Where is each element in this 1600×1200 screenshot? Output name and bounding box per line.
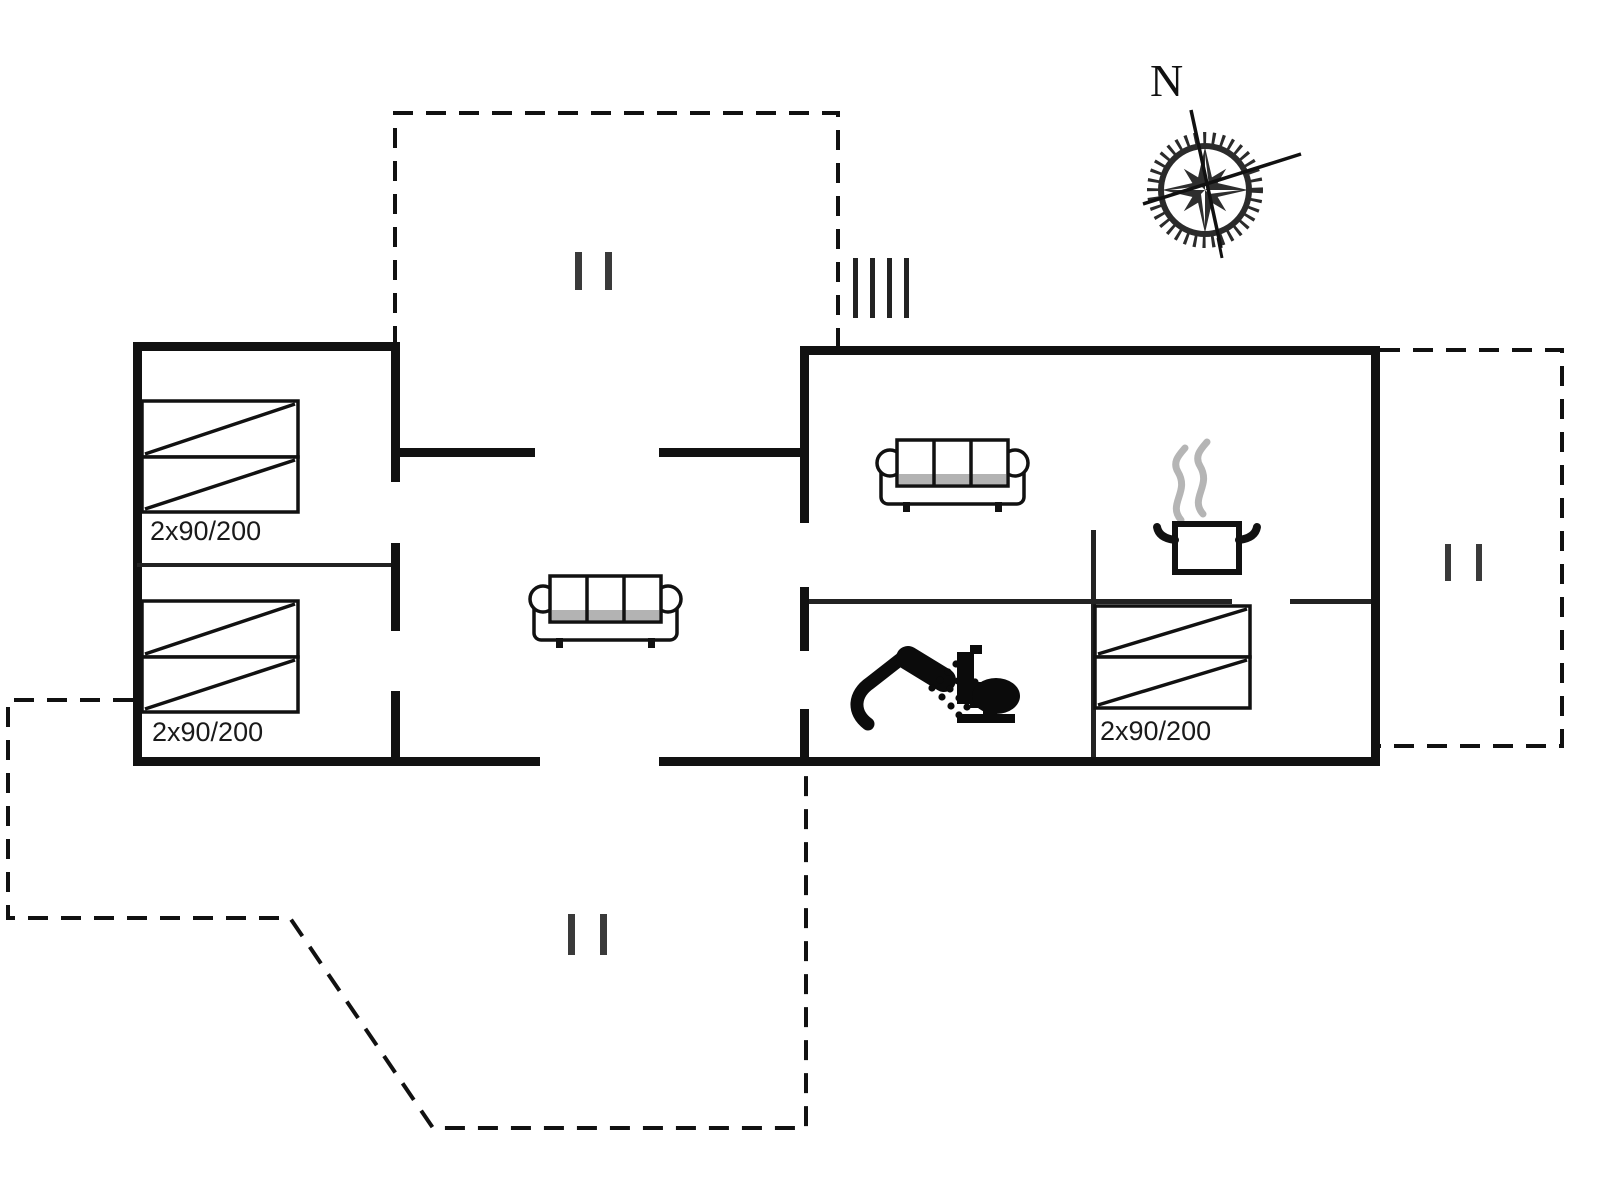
toilet-icon [957,645,1020,723]
double-bed-icon [142,401,298,512]
terrace-door-marker-top [575,252,612,290]
bed-size-label: 2x90/200 [152,717,263,747]
floor-plan-canvas: 2x90/200 2x90/200 2x90/200 [0,0,1600,1200]
terrace-outline-top [395,113,838,350]
entrance-steps-icon [853,258,909,318]
steaming-pot-icon [1157,442,1257,572]
sofa-icon [877,440,1028,512]
sofa-icon [530,576,681,648]
terrace-door-marker-bottom [568,914,607,955]
terrace-door-marker-right [1445,544,1482,581]
double-bed-icon [1095,606,1250,708]
bed-size-label: 2x90/200 [1100,716,1211,746]
bed-size-label: 2x90/200 [150,516,261,546]
floor-plan: 2x90/200 2x90/200 2x90/200 [0,0,1600,1200]
compass-rose-icon [1143,110,1301,258]
double-bed-icon [142,601,298,712]
terrace-outline-right [1380,350,1562,746]
compass-north-label: N [1150,55,1183,106]
